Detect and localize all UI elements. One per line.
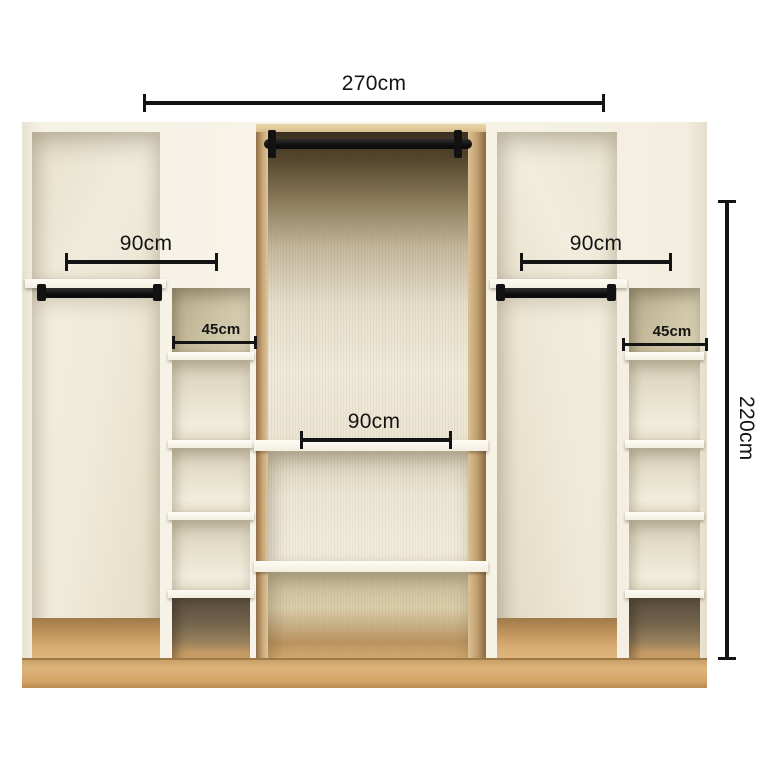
right-hanging-compartment <box>497 288 617 634</box>
dim-right-column-label: 45cm <box>632 323 712 340</box>
left-column-compartment-4 <box>172 520 250 590</box>
right-column-compartment-2 <box>629 360 700 440</box>
dim-overall-height-line <box>725 200 729 660</box>
wardrobe-dimension-diagram: 270cm 90cm 90cm 90cm 45cm 45cm 220cm <box>0 0 772 772</box>
left-hanging-compartment <box>32 288 160 634</box>
dim-overall-width-label: 270cm <box>324 72 424 96</box>
right-compartment-floor <box>497 618 617 662</box>
right-column-compartment-5 <box>629 598 700 662</box>
center-bottom-compartment <box>268 572 468 662</box>
left-hanging-rod <box>37 288 162 298</box>
left-column-compartment-3 <box>172 448 250 512</box>
right-top-compartment <box>497 132 617 280</box>
dim-left-hanging-label: 90cm <box>96 232 196 256</box>
left-column-compartment-5 <box>172 598 250 662</box>
right-column-compartment-4 <box>629 520 700 590</box>
dim-overall-height-label: 220cm <box>734 396 758 466</box>
center-middle-compartment <box>268 451 468 561</box>
left-compartment-floor <box>32 618 160 662</box>
dim-center-shelf-line <box>300 438 452 442</box>
dim-left-hanging-line <box>65 260 218 264</box>
center-hanging-compartment <box>268 132 468 440</box>
dim-left-column-line <box>172 341 257 344</box>
left-column-shelf-3 <box>168 512 254 520</box>
dim-center-shelf-label: 90cm <box>324 410 424 434</box>
dim-right-hanging-label: 90cm <box>546 232 646 256</box>
right-column-shelf-2 <box>625 440 704 448</box>
right-hanging-rod <box>496 288 616 298</box>
left-top-compartment <box>32 132 160 280</box>
left-column-compartment-2 <box>172 360 250 440</box>
dim-overall-width-line <box>143 101 605 105</box>
center-shelf-lower <box>254 561 488 572</box>
left-column-shelf-4 <box>168 590 254 598</box>
wood-base-plinth <box>22 658 707 688</box>
right-column-shelf-1 <box>625 352 704 360</box>
left-shelf <box>25 279 166 288</box>
dim-right-hanging-line <box>520 260 672 264</box>
right-column-shelf-3 <box>625 512 704 520</box>
center-left-wood-panel <box>256 132 268 662</box>
left-column-shelf-2 <box>168 440 254 448</box>
dim-left-column-label: 45cm <box>181 321 261 338</box>
right-column-shelf-4 <box>625 590 704 598</box>
right-column-compartment-3 <box>629 448 700 512</box>
left-column-shelf-1 <box>168 352 254 360</box>
center-right-wood-panel <box>468 132 486 662</box>
center-hanging-rod <box>264 139 472 149</box>
dim-right-column-line <box>622 343 708 346</box>
